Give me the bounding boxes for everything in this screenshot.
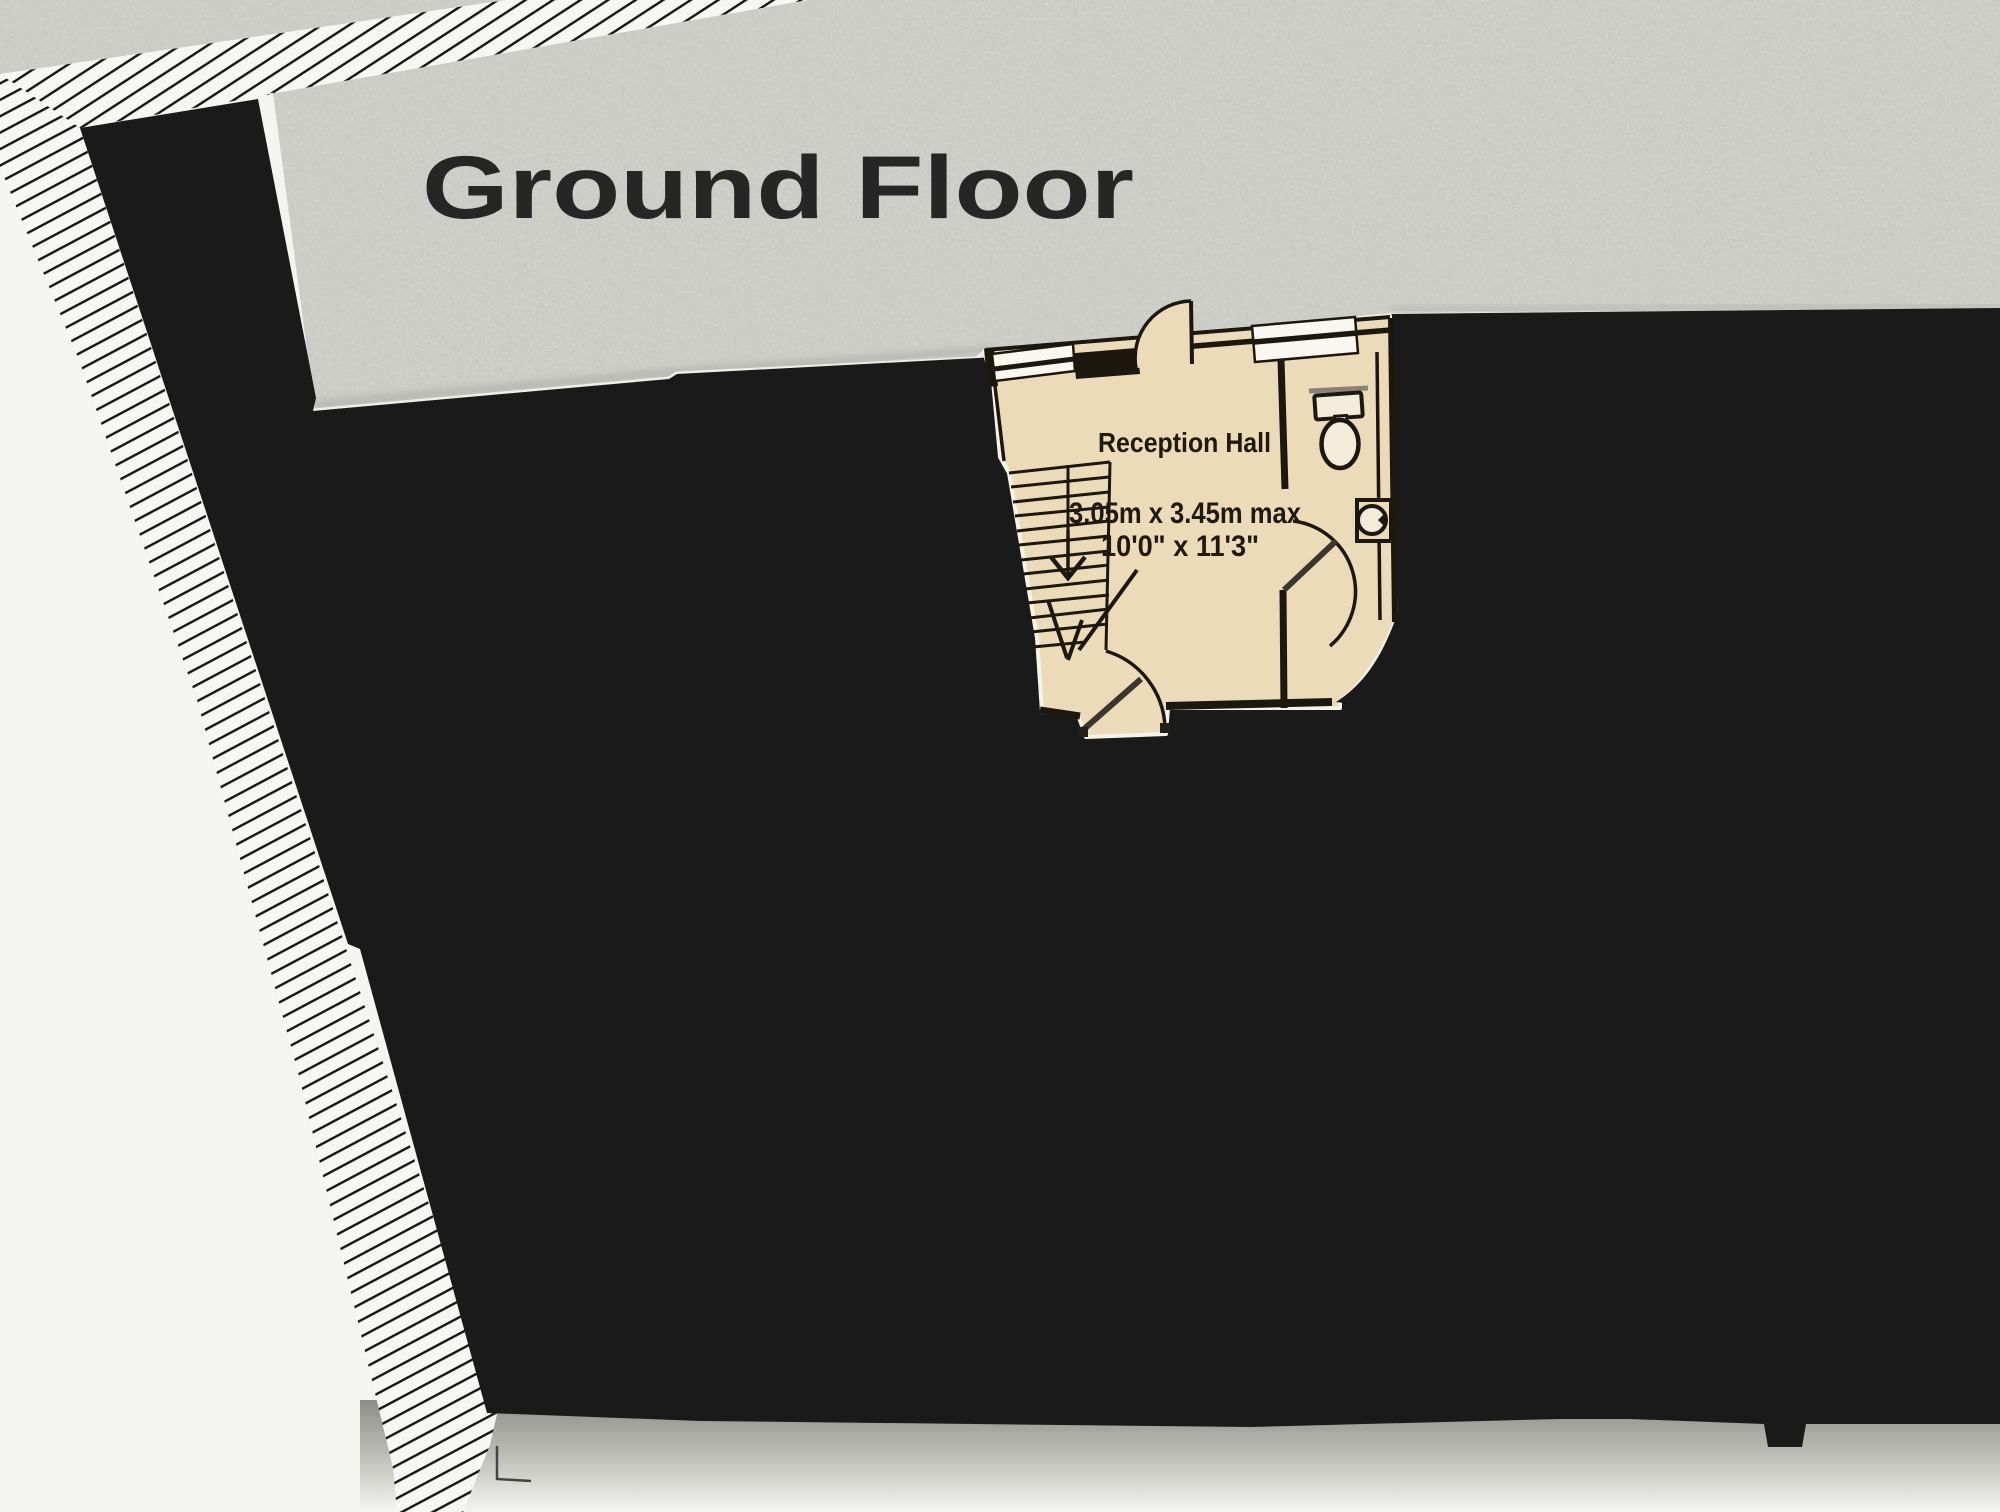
- svg-text:3.05m x 3.45m max: 3.05m x 3.45m max: [1069, 497, 1301, 530]
- svg-text:Ground Floor: Ground Floor: [422, 137, 1134, 237]
- svg-text:10'0" x 11'3": 10'0" x 11'3": [1101, 530, 1259, 563]
- svg-text:Reception Hall: Reception Hall: [1098, 427, 1271, 458]
